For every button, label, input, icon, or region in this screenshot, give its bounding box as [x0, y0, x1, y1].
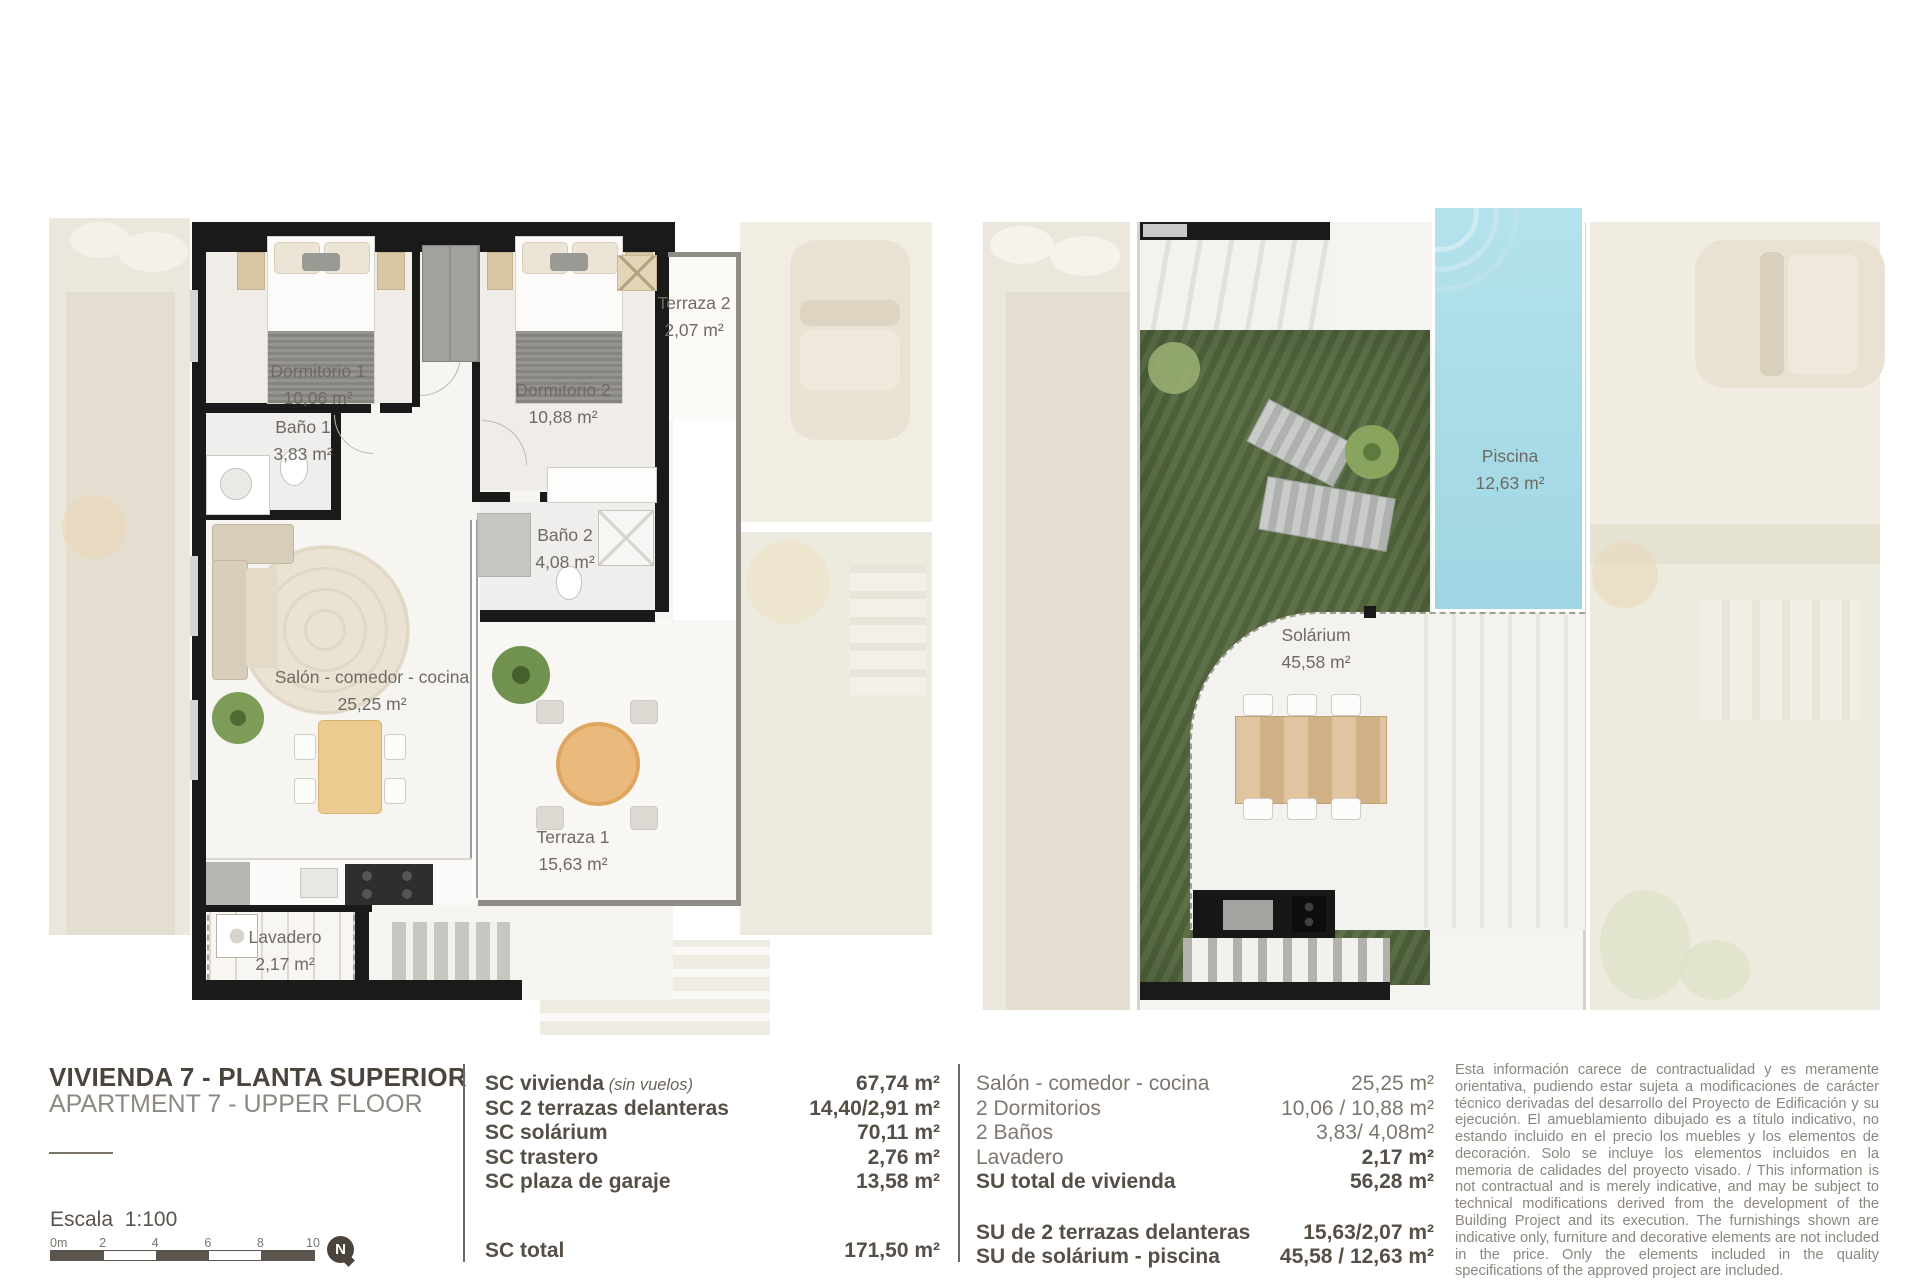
title-block: VIVIENDA 7 - PLANTA SUPERIOR APARTMENT 7…: [0, 1060, 1920, 1280]
scale-tick-labels: 0m246810: [50, 1236, 313, 1250]
nightstand: [237, 252, 265, 290]
nightstand: [377, 252, 405, 290]
area-row-value: 2,76 m²: [868, 1146, 940, 1170]
faded-flower-bed: [990, 226, 1054, 264]
area-row: SC solárium70,11 m²: [485, 1121, 940, 1146]
scale-bar-segment: [261, 1251, 314, 1260]
area-row-label: 2 Baños: [976, 1121, 1053, 1145]
plant: [230, 710, 246, 726]
faded-parasol: [746, 540, 830, 624]
faded-car-roof: [800, 330, 900, 390]
area-row-label: SC 2 terrazas delanteras: [485, 1097, 729, 1121]
neighbor-terrace-inner: [1006, 292, 1130, 1010]
area-row-label: Salón - comedor - cocina: [976, 1072, 1209, 1096]
area-row-note: (sin vuelos): [604, 1076, 693, 1094]
area-row-value: 171,50 m²: [844, 1239, 940, 1263]
room-label-dormitorio-1: Dormitorio 1 10,06 m²: [270, 358, 365, 412]
scale-tick: 0m: [50, 1236, 67, 1250]
room-name: Lavadero: [249, 924, 322, 951]
deck-shade-stripes: [1400, 614, 1583, 928]
area-row-label: SU de 2 terrazas delanteras: [976, 1221, 1250, 1245]
table-spacer: [485, 1195, 940, 1239]
room-label-bano-1: Baño 1 3,83 m²: [273, 414, 332, 468]
scale-bar-segment: [156, 1251, 209, 1260]
area-row: 2 Dormitorios10,06 / 10,88 m²: [976, 1097, 1434, 1122]
faded-flower-bed: [1050, 236, 1120, 276]
scale-bar: [50, 1250, 315, 1261]
divider: [463, 1064, 465, 1262]
wall: [380, 403, 412, 413]
scale-label: Escala 1:100: [50, 1208, 177, 1232]
outdoor-kitchen-inset: [1223, 900, 1273, 930]
area-row-label: SU de solárium - piscina: [976, 1245, 1220, 1269]
divider: [958, 1064, 960, 1262]
area-row: SC trastero2,76 m²: [485, 1146, 940, 1171]
north-icon: N: [327, 1236, 354, 1263]
legal-disclaimer: Esta información carece de contractualid…: [1455, 1062, 1879, 1280]
area-row-label: 2 Dormitorios: [976, 1097, 1101, 1121]
area-row-value: 15,63/2,07 m²: [1303, 1221, 1434, 1245]
chair: [1331, 694, 1361, 716]
room-name: Piscina: [1475, 443, 1544, 470]
room-area: 10,88 m²: [515, 404, 610, 431]
chair: [384, 778, 406, 804]
dresser: [547, 467, 657, 503]
area-row-label: SC total: [485, 1239, 564, 1263]
faded-loungers: [850, 565, 926, 695]
room-area: 2,17 m²: [249, 951, 322, 978]
area-row: SC total171,50 m²: [485, 1239, 940, 1264]
room-name: Dormitorio 2: [515, 377, 610, 404]
window: [190, 556, 198, 636]
room-name: Baño 2: [535, 522, 594, 549]
scale-tick: 2: [99, 1236, 106, 1250]
area-row-value: 67,74 m²: [856, 1072, 940, 1096]
page-title: VIVIENDA 7 - PLANTA SUPERIOR: [49, 1062, 467, 1093]
room-label-bano-2: Baño 2 4,08 m²: [535, 522, 594, 576]
area-row: Salón - comedor - cocina25,25 m²: [976, 1072, 1434, 1097]
faded-patio-table: [62, 495, 126, 559]
chair: [1331, 798, 1361, 820]
room-area: 3,83 m²: [273, 441, 332, 468]
wall: [355, 898, 369, 1000]
room-area: 12,63 m²: [1475, 470, 1544, 497]
sofa: [212, 560, 248, 680]
room-area: 10,06 m²: [270, 385, 365, 412]
room-name: Salón - comedor - cocina: [275, 664, 470, 691]
area-row-value: 45,58 / 12,63 m²: [1280, 1245, 1434, 1269]
room-label-lavadero: Lavadero 2,17 m²: [249, 924, 322, 978]
window: [1143, 224, 1187, 237]
chair: [630, 700, 658, 724]
chair: [1287, 694, 1317, 716]
area-row: SC plaza de garaje13,58 m²: [485, 1170, 940, 1195]
scale-tick: 8: [257, 1236, 264, 1250]
room-name: Dormitorio 1: [270, 358, 365, 385]
pillow: [302, 253, 340, 271]
wall: [1140, 982, 1390, 1000]
room-label-solarium: Solárium 45,58 m²: [1281, 622, 1350, 676]
outdoor-dining-table: [1235, 716, 1387, 804]
room-name: Solárium: [1281, 622, 1350, 649]
chair: [1243, 694, 1273, 716]
floor-plans: Dormitorio 1 10,06 m² Dormitorio 2 10,88…: [0, 0, 1920, 1060]
area-row-label: SU total de vivienda: [976, 1170, 1176, 1194]
faded-car-windshield: [1760, 252, 1784, 376]
area-row-label: Lavadero: [976, 1146, 1064, 1170]
scale-bar-segment: [209, 1251, 262, 1260]
area-row-value: 2,17 m²: [1362, 1146, 1434, 1170]
sofa-cushions: [246, 568, 278, 668]
room-label-terraza-1: Terraza 1 15,63 m²: [537, 824, 610, 878]
outdoor-cooktop: [1292, 896, 1326, 932]
survey-marker: [1364, 606, 1376, 618]
plant: [1148, 342, 1200, 394]
room-area: 15,63 m²: [537, 851, 610, 878]
window: [190, 700, 198, 780]
wall: [480, 492, 510, 502]
window: [190, 290, 198, 362]
area-row-value: 70,11 m²: [857, 1121, 940, 1145]
built-surface-table: SC vivienda (sin vuelos)67,74 m²SC 2 ter…: [485, 1072, 940, 1263]
room-label-salon: Salón - comedor - cocina 25,25 m²: [275, 664, 470, 718]
terrace-table: [556, 722, 640, 806]
plant: [512, 666, 530, 684]
area-row: SC 2 terrazas delanteras14,40/2,91 m²: [485, 1097, 940, 1122]
chair: [536, 700, 564, 724]
nightstand: [487, 252, 513, 290]
scale-tick: 4: [152, 1236, 159, 1250]
area-row-value: 3,83/ 4,08m²: [1316, 1121, 1434, 1145]
room-name: Baño 1: [273, 414, 332, 441]
bathroom-sink-unit: [477, 513, 531, 577]
faded-car-windshield: [800, 300, 900, 326]
scale-tick: 10: [306, 1236, 320, 1250]
chair: [630, 806, 658, 830]
chair: [294, 778, 316, 804]
shower: [598, 510, 654, 566]
room-area: 2,07 m²: [658, 317, 731, 344]
ac-unit: [617, 255, 657, 291]
pool-steps: [1432, 205, 1519, 292]
usable-surface-table: Salón - comedor - cocina25,25 m²2 Dormit…: [976, 1072, 1434, 1270]
room-label-dormitorio-2: Dormitorio 2 10,88 m²: [515, 377, 610, 431]
sofa: [212, 524, 294, 564]
faded-patio-table: [1592, 542, 1658, 608]
area-row: SU total de vivienda56,28 m²: [976, 1170, 1434, 1195]
wardrobe: [422, 245, 480, 362]
kitchen-appliance: [206, 862, 250, 905]
roof-stairs: [1140, 240, 1330, 330]
room-label-piscina: Piscina 12,63 m²: [1475, 443, 1544, 497]
swimming-pool: [1432, 205, 1585, 612]
table-spacer: [976, 1195, 1434, 1221]
room-name: Terraza 2: [658, 290, 731, 317]
terrace-railing: [668, 252, 740, 257]
divider: [49, 1152, 113, 1154]
scale-bar-segment: [51, 1251, 104, 1260]
chair: [1287, 798, 1317, 820]
pillow: [550, 253, 588, 271]
page-subtitle: APARTMENT 7 - UPPER FLOOR: [49, 1090, 423, 1119]
kitchen-sink: [300, 868, 338, 898]
area-row: 2 Baños3,83/ 4,08m²: [976, 1121, 1434, 1146]
interior-stairs: [392, 922, 510, 982]
area-row-label: SC vivienda (sin vuelos): [485, 1072, 693, 1096]
area-row: SU de solárium - piscina45,58 / 12,63 m²: [976, 1245, 1434, 1270]
area-row: SC vivienda (sin vuelos)67,74 m²: [485, 1072, 940, 1097]
area-row-value: 13,58 m²: [856, 1170, 940, 1194]
wall: [412, 252, 420, 407]
dining-table: [318, 720, 382, 814]
area-row-value: 10,06 / 10,88 m²: [1281, 1097, 1434, 1121]
room-name: Terraza 1: [537, 824, 610, 851]
room-area: 4,08 m²: [535, 549, 594, 576]
area-row-label: SC trastero: [485, 1146, 598, 1170]
chair: [294, 734, 316, 760]
plant: [1363, 443, 1381, 461]
terrace-railing: [478, 900, 741, 906]
wall: [480, 610, 655, 622]
area-row: SU de 2 terrazas delanteras15,63/2,07 m²: [976, 1221, 1434, 1246]
area-row-value: 14,40/2,91 m²: [809, 1097, 940, 1121]
cooktop: [345, 864, 433, 905]
area-row-label: SC solárium: [485, 1121, 608, 1145]
area-row-value: 56,28 m²: [1350, 1170, 1434, 1194]
room-area: 45,58 m²: [1281, 649, 1350, 676]
room-area: 25,25 m²: [275, 691, 470, 718]
faded-plants: [1600, 890, 1690, 1000]
faded-plants: [1680, 940, 1750, 1000]
area-row-value: 25,25 m²: [1351, 1072, 1434, 1096]
scale-tick: 6: [204, 1236, 211, 1250]
faded-car-roof: [1788, 254, 1858, 374]
wall: [655, 222, 669, 612]
terrace-railing: [736, 252, 741, 906]
scale-bar-segment: [104, 1251, 157, 1260]
chair: [1243, 798, 1273, 820]
faded-flower-bed: [118, 232, 188, 272]
washbasin: [220, 468, 252, 500]
area-row: Lavadero2,17 m²: [976, 1146, 1434, 1171]
chair: [384, 734, 406, 760]
room-label-terraza-2: Terraza 2 2,07 m²: [658, 290, 731, 344]
neighbor-terrace-inner: [66, 292, 175, 935]
deck-railing: [1183, 938, 1390, 984]
area-row-label: SC plaza de garaje: [485, 1170, 671, 1194]
faded-loungers: [1700, 600, 1860, 720]
